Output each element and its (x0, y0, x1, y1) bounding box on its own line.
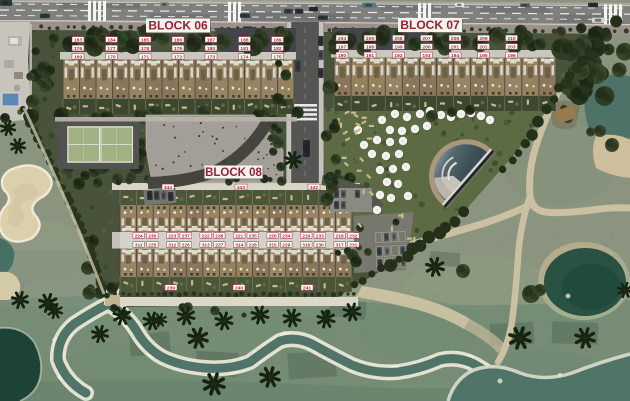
svg-text:234: 234 (282, 233, 290, 239)
svg-text:343: 343 (237, 185, 245, 191)
svg-text:311: 311 (135, 242, 143, 248)
svg-text:169: 169 (74, 54, 82, 60)
svg-text:235: 235 (249, 233, 257, 239)
svg-text:BLOCK 08: BLOCK 08 (205, 167, 262, 179)
svg-text:198: 198 (366, 44, 374, 50)
svg-text:187: 187 (207, 37, 215, 43)
svg-text:342: 342 (310, 185, 318, 191)
svg-text:315: 315 (269, 242, 277, 248)
svg-text:185: 185 (141, 37, 149, 43)
svg-text:207: 207 (422, 36, 430, 42)
svg-text:202: 202 (479, 44, 487, 50)
svg-text:195: 195 (479, 53, 487, 59)
svg-text:228: 228 (249, 242, 257, 248)
svg-text:204: 204 (338, 36, 346, 42)
svg-text:237: 237 (182, 233, 190, 239)
svg-text:225: 225 (148, 242, 156, 248)
svg-text:180: 180 (207, 46, 215, 52)
svg-text:233: 233 (316, 233, 324, 239)
svg-text:231: 231 (349, 242, 357, 248)
svg-text:172: 172 (174, 54, 182, 60)
svg-text:230: 230 (148, 233, 156, 239)
svg-text:178: 178 (141, 46, 149, 52)
svg-text:223: 223 (168, 233, 176, 239)
svg-text:240: 240 (235, 285, 243, 291)
svg-text:222: 222 (202, 233, 210, 239)
svg-text:176: 176 (74, 46, 82, 52)
svg-text:218: 218 (336, 233, 344, 239)
svg-text:182: 182 (273, 46, 281, 52)
svg-text:181: 181 (240, 46, 248, 52)
svg-text:316: 316 (302, 242, 310, 248)
svg-text:196: 196 (507, 53, 515, 59)
svg-text:199: 199 (394, 44, 402, 50)
svg-text:BLOCK 06: BLOCK 06 (148, 19, 208, 33)
svg-text:241: 241 (303, 285, 311, 291)
svg-text:232: 232 (349, 233, 357, 239)
svg-text:239: 239 (167, 285, 175, 291)
svg-text:203: 203 (507, 44, 515, 50)
svg-text:177: 177 (107, 46, 115, 52)
svg-text:183: 183 (74, 37, 82, 43)
svg-text:208: 208 (451, 36, 459, 42)
svg-text:210: 210 (507, 36, 515, 42)
svg-text:236: 236 (215, 233, 223, 239)
svg-text:206: 206 (394, 36, 402, 42)
svg-text:201: 201 (451, 44, 459, 50)
svg-text:227: 227 (215, 242, 223, 248)
svg-text:224: 224 (135, 233, 143, 239)
svg-text:229: 229 (282, 242, 290, 248)
svg-text:219: 219 (302, 233, 310, 239)
svg-text:226: 226 (182, 242, 190, 248)
svg-text:221: 221 (235, 233, 243, 239)
svg-text:197: 197 (338, 44, 346, 50)
svg-text:174: 174 (240, 54, 248, 60)
svg-text:189: 189 (273, 37, 281, 43)
svg-text:179: 179 (174, 46, 182, 52)
svg-text:175: 175 (273, 54, 281, 60)
svg-text:205: 205 (366, 36, 374, 42)
svg-text:190: 190 (338, 53, 346, 59)
svg-text:313: 313 (202, 242, 210, 248)
svg-text:171: 171 (141, 54, 149, 60)
svg-text:220: 220 (269, 233, 277, 239)
svg-text:312: 312 (168, 242, 176, 248)
svg-text:170: 170 (107, 54, 115, 60)
svg-text:230: 230 (316, 242, 324, 248)
svg-text:209: 209 (479, 36, 487, 42)
svg-text:188: 188 (240, 37, 248, 43)
svg-text:314: 314 (235, 242, 243, 248)
svg-text:173: 173 (207, 54, 215, 60)
svg-text:192: 192 (394, 53, 402, 59)
svg-text:193: 193 (422, 53, 430, 59)
svg-text:186: 186 (174, 37, 182, 43)
svg-text:317: 317 (336, 242, 344, 248)
svg-text:184: 184 (107, 37, 115, 43)
svg-text:BLOCK 07: BLOCK 07 (400, 18, 460, 32)
svg-text:344: 344 (164, 185, 172, 191)
svg-text:200: 200 (422, 44, 430, 50)
svg-text:194: 194 (451, 53, 459, 59)
svg-text:191: 191 (366, 53, 374, 59)
